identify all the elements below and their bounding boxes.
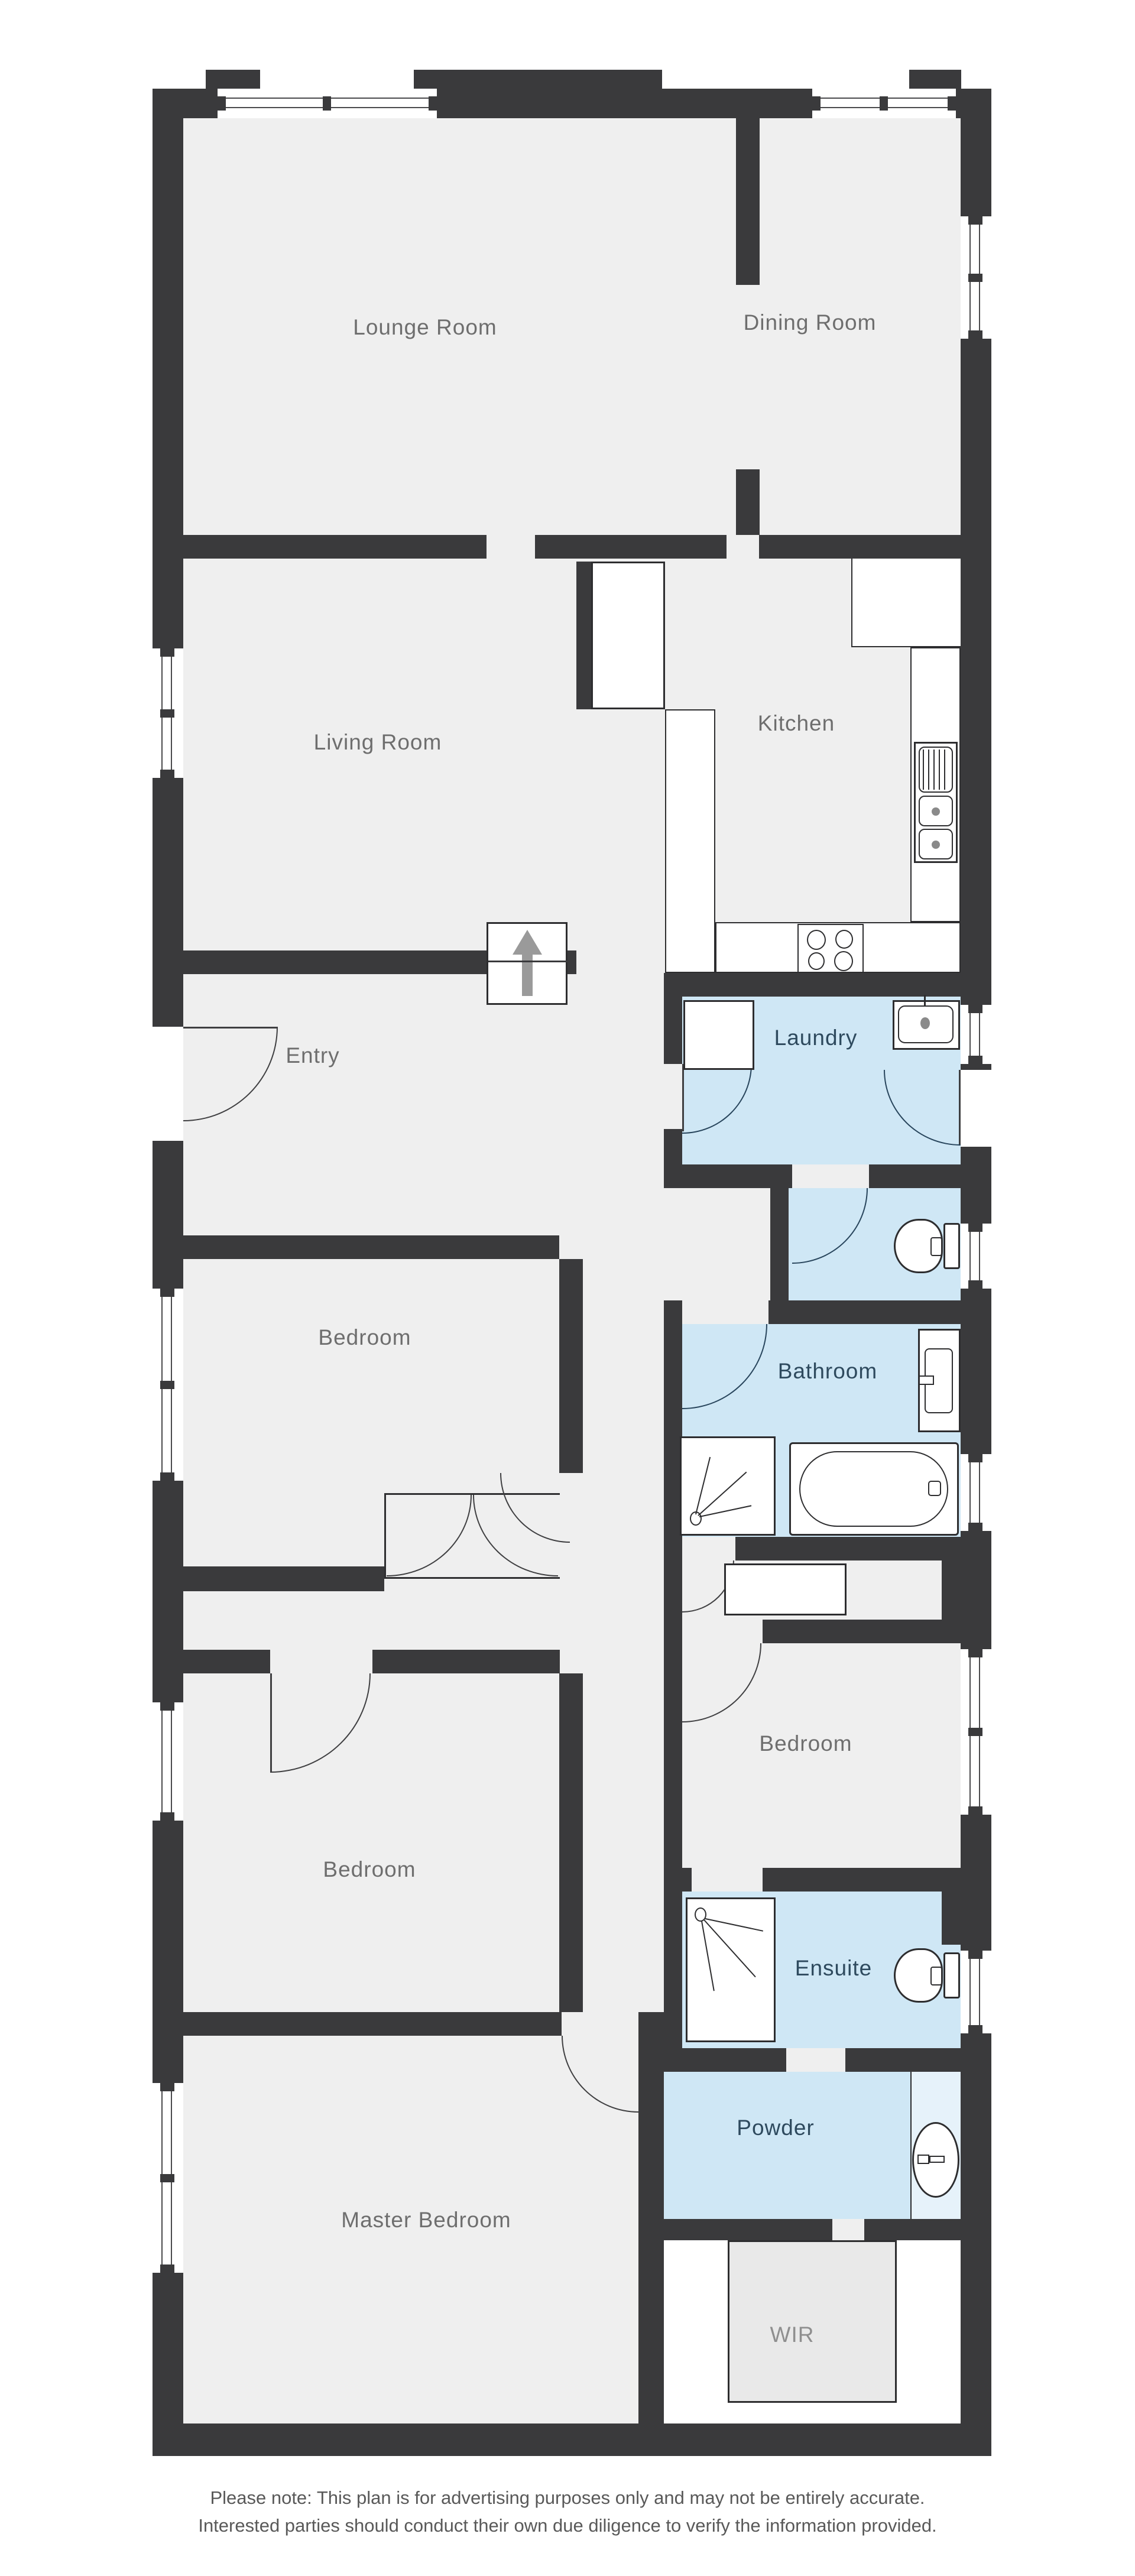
wc-toilet: [894, 1219, 960, 1273]
bath: [789, 1442, 959, 1536]
room-label-entry: Entry: [286, 1043, 339, 1068]
window-dining-top: [812, 89, 956, 118]
wall-bathroom-bottom: [735, 1537, 961, 1560]
window-bedroom2: [153, 1702, 183, 1821]
room-label-laundry: Laundry: [774, 1026, 858, 1050]
laundry-ext-door-opening: [961, 1070, 991, 1147]
window-master: [153, 2083, 183, 2273]
wall-powder-wir: [864, 2219, 961, 2240]
pier: [206, 70, 260, 90]
disclaimer-line-2: Interested parties should conduct their …: [0, 2515, 1135, 2536]
wall-linen-bedroom: [763, 1620, 961, 1643]
cooktop: [797, 924, 864, 973]
entry-door-opening: [153, 1027, 183, 1141]
wall-bedroom1-hall: [559, 1259, 583, 1473]
wall-lounge-living: [535, 535, 727, 559]
wall-entry-bedroom1: [183, 1235, 559, 1259]
room-label-bedroom2: Bedroom: [323, 1857, 416, 1882]
room-label-living: Living Room: [314, 730, 442, 755]
wall-laundry-wc: [664, 1164, 792, 1188]
powder-floor: [664, 2072, 910, 2219]
wall-linen-left: [664, 1560, 682, 1620]
wall-hall-laundry: [664, 1129, 682, 1164]
robe-nook-wall: [384, 1493, 386, 1579]
room-label-dining: Dining Room: [744, 310, 877, 335]
wall-linen-bedroom: [664, 1620, 682, 1643]
ensuite-toilet: [894, 1948, 960, 2003]
room-label-bathroom: Bathroom: [778, 1359, 877, 1384]
robe-nook-wall: [384, 1577, 560, 1579]
window-bedroom1: [153, 1289, 183, 1481]
bathroom-vanity: [918, 1329, 961, 1432]
wall-ensuite-powder: [682, 2048, 786, 2072]
entry-arrow-icon: [522, 951, 533, 996]
wall-wc-bathroom: [664, 1300, 682, 1324]
outer-wall-bottom: [153, 2423, 991, 2456]
pier: [414, 70, 662, 90]
fridge-space: [851, 559, 961, 647]
disclaimer-line-1: Please note: This plan is for advertisin…: [0, 2487, 1135, 2509]
room-label-master: Master Bedroom: [341, 2208, 511, 2233]
wall-kitchen-stub: [576, 562, 591, 709]
room-label-wir: WIR: [770, 2322, 815, 2347]
wall-bedroom-right-left: [664, 1643, 682, 1868]
laundry-tub: [893, 1000, 960, 1050]
entry-arrow-box: [487, 922, 567, 1005]
window-bedroom-right: [961, 1649, 991, 1815]
wall-living-entry: [183, 950, 487, 974]
kitchen-bench-left: [665, 709, 715, 973]
window-wc: [961, 1224, 991, 1289]
room-label-lounge: Lounge Room: [353, 315, 497, 340]
wall-lounge-dining: [736, 118, 760, 285]
powder-basin: [912, 2122, 959, 2198]
wall-ensuite-left: [664, 1892, 682, 2072]
wall-master-top: [183, 2012, 562, 2036]
wall-lobby-bedroom2: [372, 1650, 560, 1673]
wall-laundry-wc: [869, 1164, 961, 1188]
wall-hall-laundry: [664, 997, 682, 1064]
pantry: [591, 562, 665, 709]
wall-living-entry: [567, 950, 576, 974]
room-label-bedroom-right: Bedroom: [759, 1731, 852, 1756]
wall-bedroom1-bottom: [183, 1566, 384, 1591]
wall-lobby-bedroom2: [183, 1650, 270, 1673]
floor-plan: Lounge Room Dining Room Living Room Kitc…: [0, 0, 1135, 2576]
wall-dining-kitchen: [759, 535, 961, 559]
wall-kitchen-laundry: [664, 973, 961, 997]
window-dining-side: [961, 216, 991, 339]
window-living: [153, 648, 183, 778]
wall-bedroom2-hall: [559, 1673, 583, 2012]
wall-lounge-dining: [736, 469, 760, 535]
wall-bedroom-ensuite: [664, 1868, 692, 1892]
wall-powder-wir: [664, 2219, 832, 2240]
linen-robe: [724, 1563, 847, 1615]
ensuite-shower: [686, 1897, 776, 2042]
wall-lounge-living: [183, 535, 487, 559]
room-label-powder: Powder: [737, 2116, 814, 2140]
kitchen-sink: [914, 742, 958, 863]
room-label-ensuite: Ensuite: [795, 1956, 872, 1981]
wall-wc-left: [770, 1188, 789, 1300]
wir-robe: [728, 2240, 897, 2403]
room-label-bedroom1: Bedroom: [318, 1325, 411, 1350]
wall-wc-bathroom: [768, 1300, 961, 1324]
room-label-kitchen: Kitchen: [758, 711, 835, 736]
wall-bathroom-bottom: [664, 1537, 682, 1560]
shower: [680, 1436, 776, 1536]
window-laundry: [961, 1005, 991, 1064]
window-lounge-top: [218, 89, 437, 118]
laundry-cupboard: [683, 1000, 754, 1070]
pier: [909, 70, 961, 90]
window-ensuite: [961, 1951, 991, 2033]
wall-ensuite-powder: [845, 2048, 961, 2072]
wall-master-right: [638, 2012, 664, 2423]
window-bathroom: [961, 1454, 991, 1531]
wall-bedroom-ensuite: [763, 1868, 961, 1892]
